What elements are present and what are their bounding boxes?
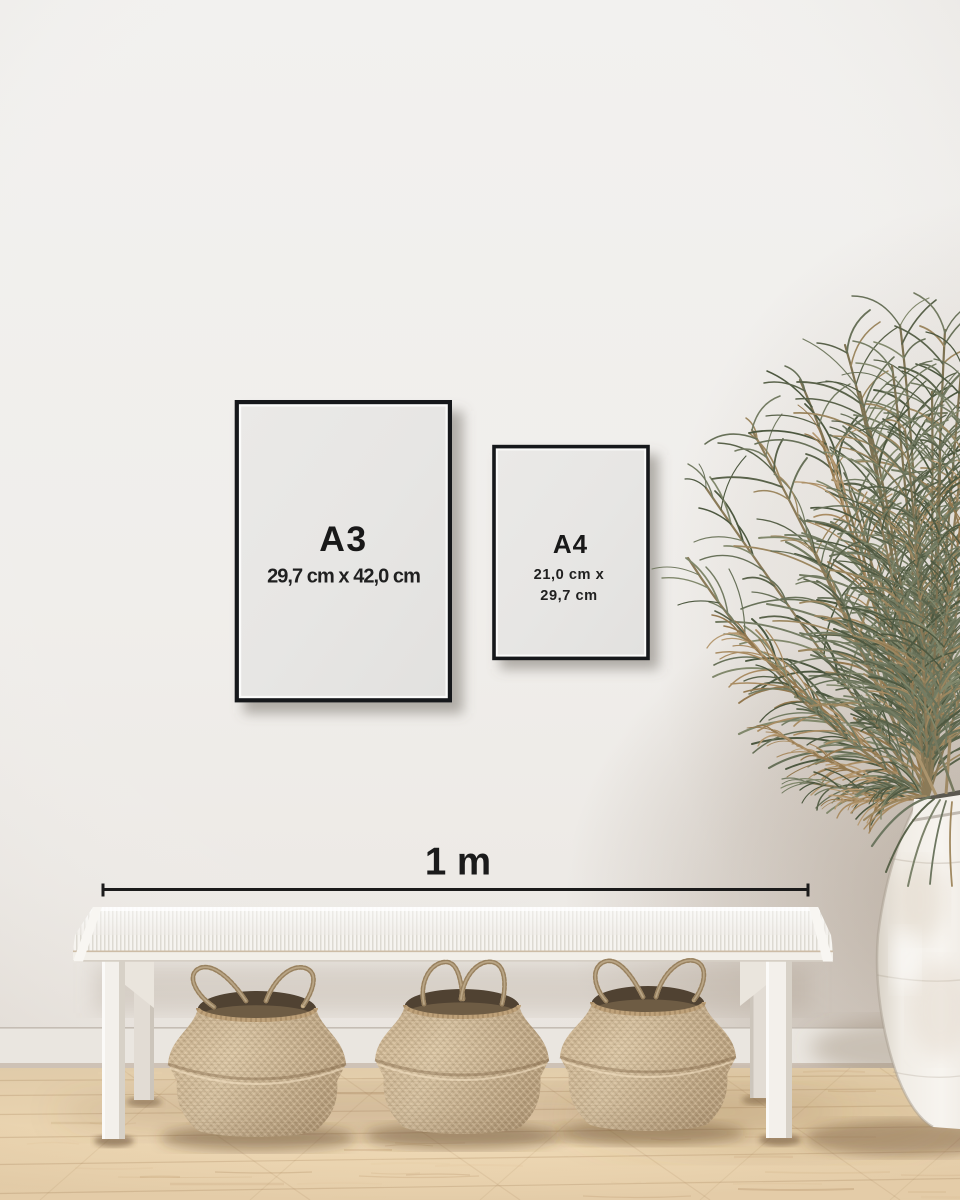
svg-text:A4: A4 [553, 529, 588, 559]
svg-text:21,0 cm x: 21,0 cm x [534, 567, 605, 583]
svg-text:A3: A3 [319, 519, 367, 559]
svg-text:29,7 cm: 29,7 cm [540, 588, 597, 604]
svg-text:1 m: 1 m [425, 841, 491, 884]
svg-text:29,7 cm x 42,0 cm: 29,7 cm x 42,0 cm [267, 566, 420, 588]
